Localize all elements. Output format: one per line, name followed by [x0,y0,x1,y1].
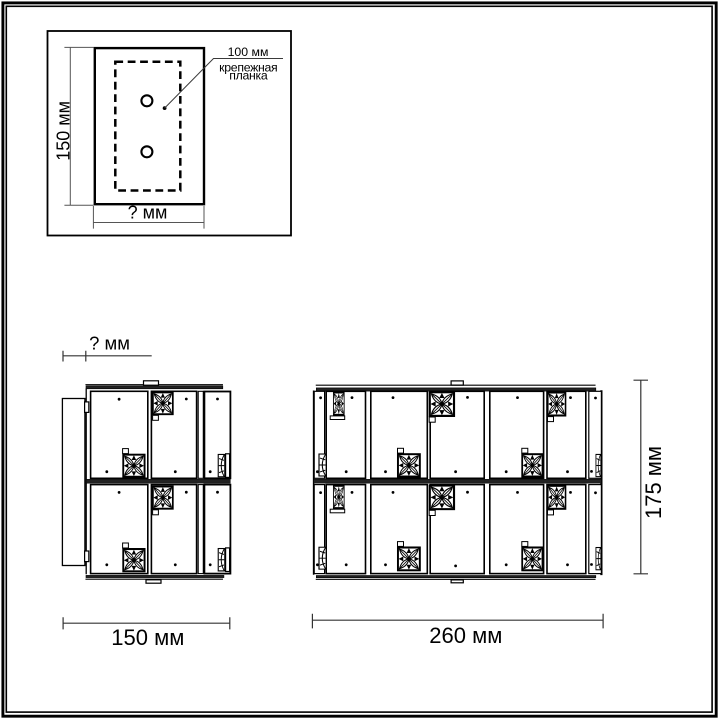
svg-text:150 мм: 150 мм [111,625,184,650]
svg-text:260 мм: 260 мм [429,623,502,648]
svg-text:150 мм: 150 мм [53,101,73,161]
svg-text:планка: планка [229,68,268,82]
svg-text:175 мм: 175 мм [641,446,666,519]
svg-text:100 мм: 100 мм [228,45,269,59]
svg-text:? мм: ? мм [128,203,168,223]
svg-text:? мм: ? мм [89,333,130,354]
